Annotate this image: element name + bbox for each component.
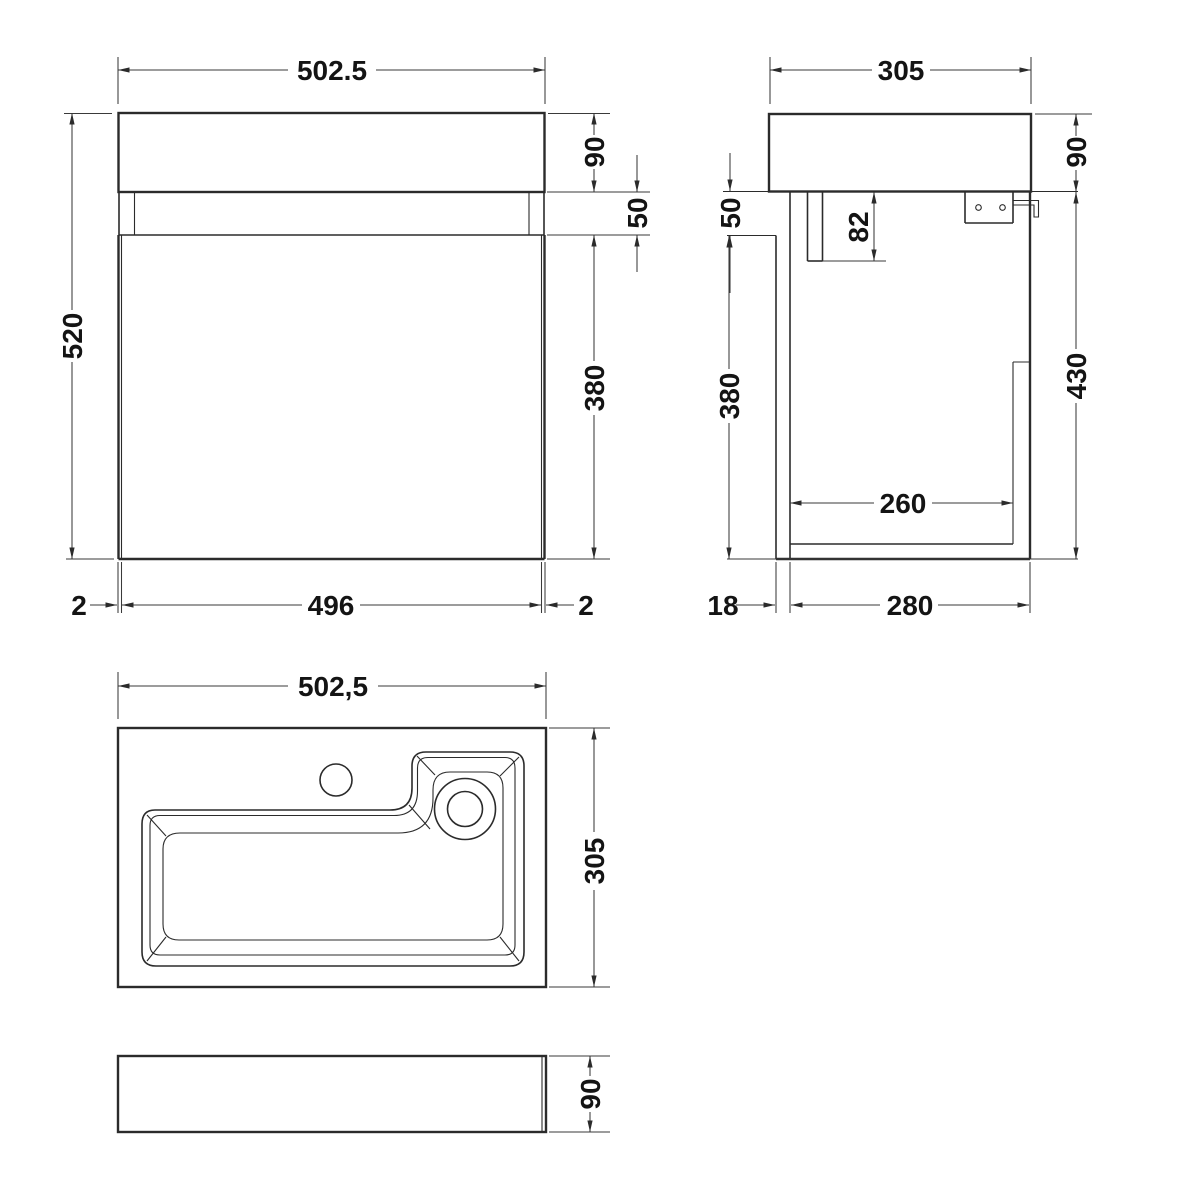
plan-bowl-rim-mid — [150, 758, 515, 956]
front-dim-door-height-label: 380 — [579, 365, 610, 412]
front-dim-height: 520 — [57, 113, 114, 559]
profile-dim-height-label: 90 — [575, 1078, 606, 1109]
side-dim-wall-recess-label: 50 — [715, 197, 746, 228]
bracket-screw-hole — [976, 205, 982, 211]
side-dim-wall-recess: 50 — [715, 153, 746, 293]
side-dim-depth-label: 305 — [878, 55, 925, 86]
front-dim-width-label: 502.5 — [297, 55, 367, 86]
side-dim-internal-depth: 260 — [790, 488, 1013, 519]
bracket-screw-hole — [1000, 205, 1006, 211]
front-view-outline — [119, 113, 545, 559]
front-dim-basin-height-label: 90 — [579, 136, 610, 167]
plan-bowl-rim-outer — [142, 752, 524, 966]
plan-drain-outer — [435, 779, 496, 840]
front-dim-gap-left-label: 2 — [71, 590, 87, 621]
side-dim-internal-depth-label: 260 — [880, 488, 927, 519]
front-dim-height-label: 520 — [57, 313, 88, 360]
front-dim-gap-right-label: 2 — [578, 590, 594, 621]
plan-dim-width-label: 502,5 — [298, 671, 368, 702]
plan-view: 502,5 305 — [118, 671, 610, 987]
side-dim-back-gap-label: 18 — [707, 590, 738, 621]
side-dim-basin-height-label: 90 — [1061, 136, 1092, 167]
front-dim-door-width-label: 496 — [308, 590, 355, 621]
plan-basin-outline — [118, 728, 546, 987]
front-dim-basin-height: 90 — [548, 113, 610, 192]
profile-view-outline — [118, 1056, 546, 1132]
side-dim-cabinet-depth-label: 280 — [887, 590, 934, 621]
side-dim-basin-height: 90 — [1035, 114, 1092, 192]
front-basin-top — [119, 113, 545, 192]
bracket-hook — [1013, 201, 1039, 218]
plan-tap-hole — [320, 764, 352, 796]
profile-dim-height: 90 — [549, 1056, 610, 1132]
plan-dim-depth: 305 — [549, 728, 610, 987]
side-dim-bracket-drop-label: 82 — [843, 211, 874, 242]
plan-dim-depth-label: 305 — [579, 838, 610, 885]
front-dim-recess-label: 50 — [622, 197, 653, 228]
side-dim-bracket-drop: 82 — [823, 192, 887, 261]
front-view: 502.5 520 90 50 — [57, 55, 653, 621]
front-dim-width: 502.5 — [118, 55, 545, 104]
side-dim-internal-height: 380 — [714, 236, 745, 559]
side-basin-top — [769, 114, 1031, 192]
side-dim-internal-height-label: 380 — [714, 373, 745, 420]
side-view: 305 90 430 50 82 — [707, 55, 1092, 621]
side-dim-bottom-row: 18 280 — [707, 562, 1030, 621]
side-dim-cabinet-height-label: 430 — [1061, 353, 1092, 400]
plan-view-outline — [118, 728, 546, 987]
side-dim-cabinet-height: 430 — [1061, 192, 1092, 559]
drawing-canvas: 502.5 520 90 50 — [0, 0, 1200, 1200]
plan-dim-width: 502,5 — [118, 671, 546, 719]
technical-drawing-page: 502.5 520 90 50 — [0, 0, 1200, 1200]
plan-drain-inner — [448, 792, 483, 827]
profile-basin-outline — [118, 1056, 546, 1132]
front-dim-door-height: 380 — [547, 235, 610, 559]
front-dim-bottom-row: 2 496 2 — [71, 562, 594, 621]
front-dim-recess: 50 — [547, 155, 653, 272]
side-dim-depth: 305 — [770, 55, 1031, 104]
profile-view: 90 — [118, 1056, 610, 1132]
